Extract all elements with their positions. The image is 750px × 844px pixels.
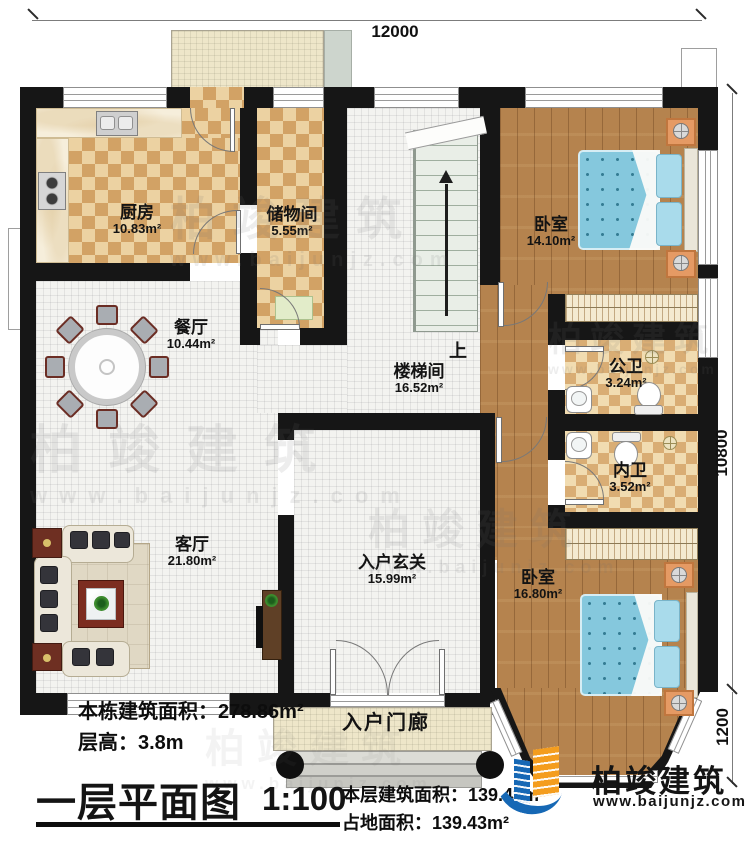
footprint-area-text: 占地面积：139.43m²	[342, 809, 509, 835]
shower-drain	[645, 350, 659, 364]
room-area: 3.52m²	[609, 480, 650, 495]
logo-tower-blue	[514, 759, 530, 804]
room-label-foyer: 入户玄关 15.99m²	[358, 553, 426, 587]
building-area-label: 本栋建筑面积：	[78, 701, 218, 723]
stair-rail	[413, 130, 415, 332]
wall	[167, 87, 190, 108]
cushion	[92, 531, 110, 549]
nightstand	[666, 118, 696, 146]
window	[63, 87, 167, 108]
dimension-line-right	[732, 93, 733, 690]
dimension-right-lower: 1200	[713, 702, 731, 752]
wall	[300, 328, 347, 345]
dimension-line-right-lower	[732, 692, 733, 784]
plant	[94, 596, 109, 611]
nightstand	[664, 690, 694, 716]
wall	[36, 263, 190, 281]
wall	[548, 294, 565, 345]
kitchen-sink	[96, 111, 138, 136]
dining-chair	[96, 305, 118, 325]
floor-height-value: 3.8m	[138, 732, 184, 754]
porch-step	[286, 751, 482, 764]
pillow	[654, 646, 680, 688]
logo-tower-orange	[533, 746, 559, 798]
toilet-tank	[634, 405, 663, 415]
room-area: 16.52m²	[394, 381, 445, 396]
dimension-line-top	[32, 20, 702, 21]
side-table	[32, 528, 62, 558]
ac-unit-outline	[681, 48, 717, 88]
room-area: 3.24m²	[605, 376, 646, 391]
tv	[256, 606, 263, 648]
terrace-strip	[324, 30, 352, 88]
dining-table	[69, 329, 145, 405]
cushion	[114, 532, 130, 548]
shower-drain	[663, 436, 677, 450]
room-label-dining: 餐厅 10.44m²	[167, 318, 215, 352]
room-label-bedroom2: 卧室 16.80m²	[514, 568, 562, 602]
building-area-value: 278.86m²	[218, 701, 304, 723]
drawing-scale: 1:100	[262, 780, 346, 818]
dimension-tick	[27, 8, 38, 19]
bath-private-door	[565, 499, 604, 505]
kitchen-door-opening	[190, 87, 244, 108]
room-label-storage: 储物间 5.55m²	[267, 205, 318, 239]
stove	[38, 172, 66, 210]
bathroom-sink	[566, 386, 592, 413]
room-name: 卧室	[514, 568, 562, 587]
room-name: 厨房	[113, 203, 161, 222]
porch-column	[276, 751, 304, 779]
wardrobe-bedroom1	[565, 294, 698, 322]
room-label-living: 客厅 21.80m²	[168, 535, 216, 569]
wall	[480, 413, 495, 693]
dining-chair	[45, 356, 65, 378]
pillow	[654, 600, 680, 642]
dimension-top: 12000	[355, 22, 435, 42]
room-label-bath-public: 公卫 3.24m²	[605, 357, 646, 391]
room-label-kitchen: 厨房 10.83m²	[113, 203, 161, 237]
room-label-bedroom1: 卧室 14.10m²	[527, 215, 575, 249]
room-name: 客厅	[168, 535, 216, 554]
wall	[698, 358, 718, 692]
room-name: 楼梯间	[394, 362, 445, 381]
window	[698, 278, 718, 358]
title-underline	[36, 822, 340, 827]
room-name: 入户玄关	[358, 553, 426, 572]
bathroom-sink	[566, 432, 592, 459]
page-title: 一层平面图	[36, 770, 241, 828]
floor-height-text: 层高：3.8m	[78, 726, 184, 755]
dining-chair	[149, 356, 169, 378]
window	[374, 87, 459, 108]
room-area: 21.80m²	[168, 554, 216, 569]
floor-height-label: 层高：	[78, 732, 138, 754]
wardrobe-bedroom2	[565, 528, 698, 560]
wall	[20, 693, 67, 715]
pillow	[656, 202, 682, 246]
wall	[459, 87, 525, 108]
room-area: 10.83m²	[113, 222, 161, 237]
room-name: 卧室	[527, 215, 575, 234]
porch-step	[286, 764, 482, 776]
stair-arrow-head	[439, 170, 453, 183]
wall	[480, 108, 500, 285]
floor-plan: 厨房 10.83m² 储物间 5.55m² 餐厅 10.44m² 楼梯间 16.…	[0, 0, 750, 844]
floor-hall-strip	[257, 345, 347, 413]
dimension-tick	[695, 8, 706, 19]
room-name: 内卫	[609, 461, 650, 480]
headboard	[684, 148, 698, 252]
dimension-right: 10800	[712, 423, 732, 483]
room-name: 入户门廊	[342, 712, 430, 734]
room-label-bath-private: 内卫 3.52m²	[609, 461, 650, 495]
wall	[548, 414, 698, 431]
cushion	[40, 614, 58, 632]
headboard	[686, 592, 698, 698]
cushion	[70, 531, 88, 549]
wall	[244, 87, 273, 108]
room-area: 10.44m²	[167, 337, 215, 352]
cushion	[96, 648, 114, 666]
wall	[698, 87, 718, 150]
nightstand	[664, 562, 694, 588]
wall	[698, 265, 718, 278]
stair-direction-arrow	[445, 184, 448, 316]
entry-door-right	[439, 649, 445, 695]
room-area: 15.99m²	[358, 572, 426, 587]
wall	[324, 108, 347, 330]
brand-url: www.baijunjz.com	[593, 793, 746, 810]
cushion	[72, 648, 90, 666]
window	[525, 87, 663, 108]
side-table	[32, 643, 62, 671]
window	[698, 150, 718, 265]
room-name: 餐厅	[167, 318, 215, 337]
building-area-text: 本栋建筑面积：278.86m²	[78, 695, 304, 724]
pillow	[656, 154, 682, 198]
stairs-up-label: 上	[449, 337, 467, 363]
dining-chair	[96, 409, 118, 429]
terrace-hatch	[171, 30, 324, 88]
wall	[278, 413, 495, 430]
plant	[265, 594, 278, 607]
floor-area-label: 本层建筑面积：	[342, 785, 468, 805]
brand-logo-icon	[497, 748, 589, 818]
wall	[240, 328, 260, 345]
room-name: 公卫	[605, 357, 646, 376]
room-label-stairwell: 楼梯间 16.52m²	[394, 362, 445, 396]
room-name: 储物间	[267, 205, 318, 224]
room-area: 5.55m²	[267, 224, 318, 239]
cushion	[40, 590, 58, 608]
room-area: 16.80m²	[514, 587, 562, 602]
wall	[324, 87, 374, 108]
window	[273, 87, 324, 108]
nightstand	[666, 250, 696, 278]
room-label-porch: 入户门廊	[342, 712, 430, 734]
cushion	[40, 566, 58, 584]
footprint-label: 占地面积：	[342, 813, 432, 833]
wall	[240, 108, 257, 205]
wall	[548, 322, 698, 340]
room-area: 14.10m²	[527, 234, 575, 249]
wall	[548, 512, 698, 528]
wall	[278, 413, 294, 440]
